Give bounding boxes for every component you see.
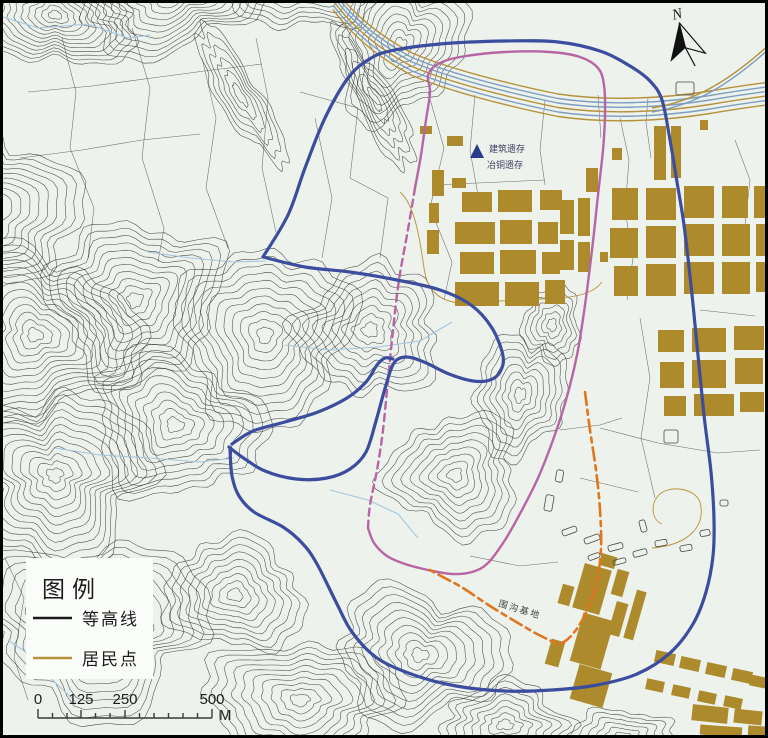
- label-smelting-remains: 冶铜遗存: [487, 159, 523, 170]
- scale-label-0: 0: [34, 691, 42, 708]
- scale-label-500: 500: [199, 691, 224, 708]
- scale-label-250: 250: [112, 691, 137, 708]
- legend-title: 图例: [42, 576, 102, 602]
- legend-label-residential: 居民点: [82, 650, 139, 669]
- scale-unit: M: [219, 707, 232, 724]
- site-map: 建筑遗存 冶铜遗存 围沟基地 图例 等高线 居民点 0 125 250 500 …: [0, 0, 768, 738]
- legend: 图例 等高线 居民点: [26, 558, 153, 679]
- label-building-remains: 建筑遗存: [489, 143, 525, 154]
- map-page: 建筑遗存 冶铜遗存 围沟基地 图例 等高线 居民点 0 125 250 500 …: [0, 0, 768, 738]
- scale-label-125: 125: [68, 691, 93, 708]
- legend-label-contour: 等高线: [82, 610, 139, 629]
